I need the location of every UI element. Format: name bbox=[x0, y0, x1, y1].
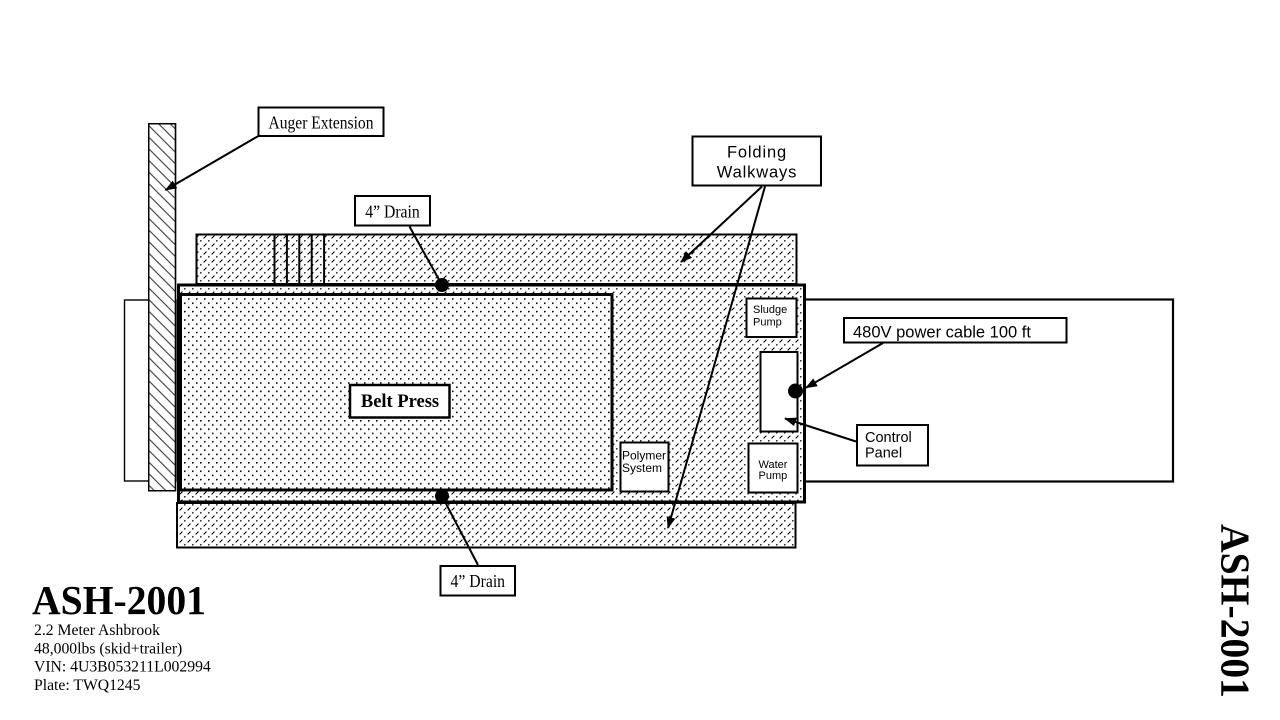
svg-text:Walkways: Walkways bbox=[717, 163, 797, 181]
svg-text:VIN: 4U3B053211L002994: VIN: 4U3B053211L002994 bbox=[34, 659, 211, 676]
svg-text:Plate: TWQ1245: Plate: TWQ1245 bbox=[34, 677, 141, 694]
svg-text:System: System bbox=[622, 461, 662, 475]
svg-text:Pump: Pump bbox=[759, 470, 788, 482]
svg-text:Folding: Folding bbox=[727, 144, 787, 162]
svg-text:4” Drain: 4” Drain bbox=[365, 202, 420, 222]
svg-text:48,000lbs (skid+trailer): 48,000lbs (skid+trailer) bbox=[34, 640, 182, 657]
svg-text:Auger Extension: Auger Extension bbox=[269, 113, 374, 133]
svg-text:Sludge: Sludge bbox=[753, 304, 787, 316]
svg-text:Belt Press: Belt Press bbox=[361, 392, 439, 412]
svg-text:480V power cable 100 ft: 480V power cable 100 ft bbox=[853, 323, 1031, 341]
svg-text:ASH-2001: ASH-2001 bbox=[32, 577, 206, 623]
svg-text:4” Drain: 4” Drain bbox=[451, 571, 506, 591]
svg-text:Control: Control bbox=[865, 430, 912, 446]
svg-text:Panel: Panel bbox=[865, 446, 902, 462]
svg-text:ASH-2001: ASH-2001 bbox=[1213, 524, 1259, 698]
svg-text:Pump: Pump bbox=[753, 317, 782, 329]
svg-text:2.2 Meter Ashbrook: 2.2 Meter Ashbrook bbox=[34, 622, 160, 639]
